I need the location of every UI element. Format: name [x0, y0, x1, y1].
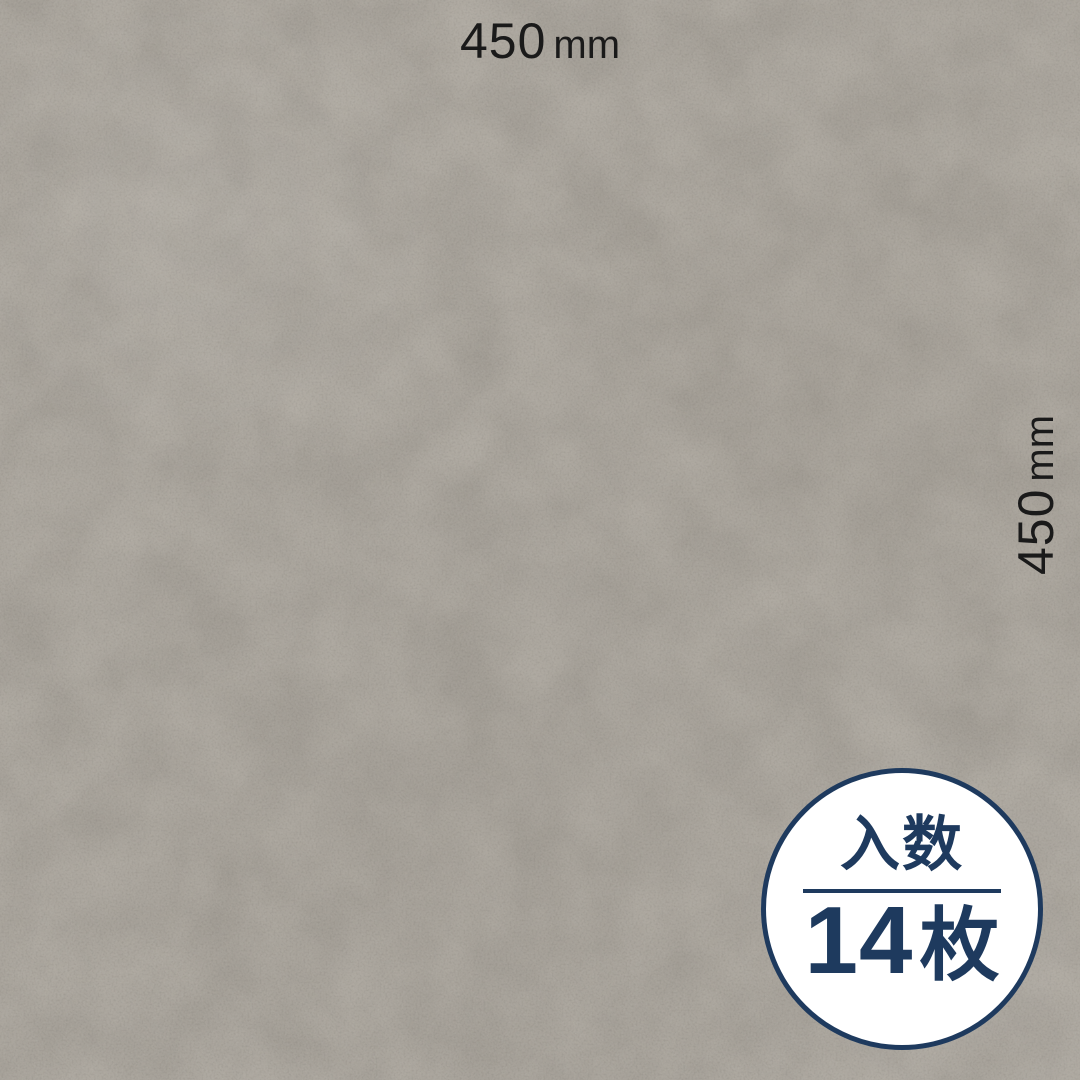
badge-title: 入数	[840, 815, 964, 875]
badge-count-unit: 枚	[919, 906, 999, 986]
dimension-width-unit: mm	[553, 23, 620, 67]
dimension-width-value: 450	[460, 13, 546, 69]
dimension-height-unit: mm	[1018, 415, 1062, 482]
badge-count: 14枚	[805, 893, 1000, 989]
badge-count-number: 14	[805, 893, 914, 989]
dimension-label-width: 450mm	[0, 16, 1080, 66]
pack-quantity-badge: 入数 14枚	[761, 768, 1043, 1050]
dimension-height-value: 450	[1008, 489, 1064, 575]
dimension-label-height: 450mm	[1011, 415, 1061, 575]
tile-product-image: 450mm 450mm 入数 14枚	[0, 0, 1080, 1080]
